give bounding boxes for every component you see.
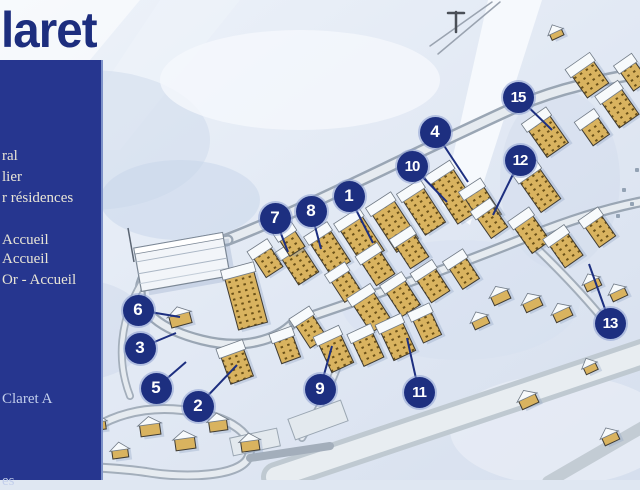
legend-sidebar: rallierr résidencesAccueilAccueilOr - Ac… [0, 60, 103, 480]
legend-item-claret-a[interactable]: Claret A [0, 391, 101, 408]
legend-item-general[interactable]: ral [0, 148, 101, 165]
legend-item-or-accueil[interactable]: Or - Accueil [0, 272, 101, 289]
legend-item-accueil-2[interactable]: Accueil [0, 251, 101, 268]
map-marker-12[interactable]: 12 [505, 145, 536, 176]
map-marker-3[interactable]: 3 [125, 333, 156, 364]
map-marker-6[interactable]: 6 [123, 295, 154, 326]
map-marker-8[interactable]: 8 [296, 196, 327, 227]
map-marker-5[interactable]: 5 [141, 373, 172, 404]
map-marker-13[interactable]: 13 [595, 308, 626, 339]
map-marker-9[interactable]: 9 [305, 374, 336, 405]
map-marker-4[interactable]: 4 [420, 117, 451, 148]
legend-item-residences[interactable]: r résidences [0, 190, 101, 207]
map-marker-15[interactable]: 15 [503, 82, 534, 113]
legend-item-lier[interactable]: lier [0, 169, 101, 186]
map-marker-10[interactable]: 10 [397, 151, 428, 182]
map-marker-2[interactable]: 2 [183, 391, 214, 422]
legend-item-accueil-1[interactable]: Accueil [0, 232, 101, 249]
map-marker-1[interactable]: 1 [334, 181, 365, 212]
resort-map-page: 1234567891011121315 rallierr résidencesA… [0, 0, 640, 480]
legend-item-es[interactable]: es [0, 473, 101, 490]
page-title: laret [1, 5, 97, 55]
map-marker-11[interactable]: 11 [404, 377, 435, 408]
map-marker-7[interactable]: 7 [260, 203, 291, 234]
